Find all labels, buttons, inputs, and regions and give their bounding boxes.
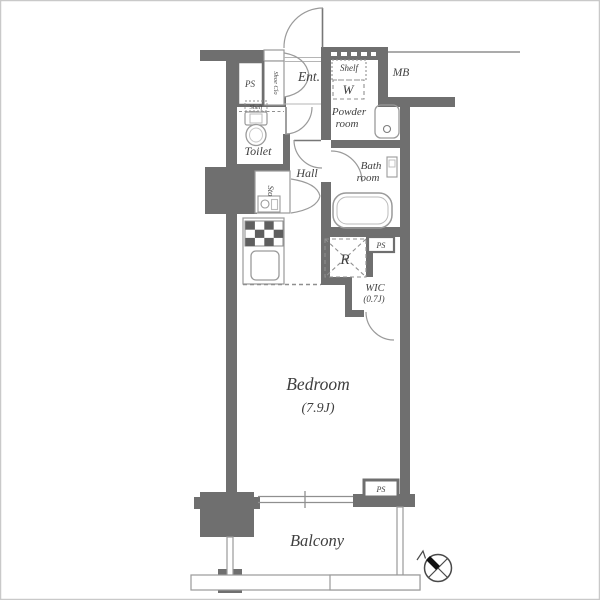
label-ps-mid: PS bbox=[376, 241, 386, 250]
label-hall: Hall bbox=[295, 166, 318, 180]
balcony-slab-right bbox=[330, 575, 420, 590]
pillar-mid-left bbox=[205, 167, 257, 214]
balcony-wall-right bbox=[397, 507, 403, 576]
shoe-closet-back bbox=[264, 50, 284, 61]
label-shoe-closet: Shoe Clo bbox=[272, 71, 279, 94]
label-toilet-shelf: Shelf bbox=[250, 104, 264, 111]
label-entrance: Ent. bbox=[297, 69, 320, 84]
label-shelf-washer: Shelf bbox=[340, 63, 359, 73]
wall-right bbox=[400, 97, 410, 507]
label-powder-1: Powder bbox=[331, 106, 367, 118]
wall-left bbox=[226, 50, 237, 492]
balcony-wall-left bbox=[227, 537, 233, 576]
label-refrigerator: R bbox=[339, 252, 349, 268]
label-washer: W bbox=[343, 82, 355, 97]
label-meter-box: MB bbox=[392, 67, 410, 79]
label-bath-2: room bbox=[357, 172, 380, 184]
label-wic-size: (0.7J) bbox=[363, 294, 384, 304]
floorplan-svg: Ent. Shoe Clo PS Shelf W MB Powder room … bbox=[0, 0, 600, 600]
label-powder-2: room bbox=[336, 118, 359, 130]
label-bath-1: Bath bbox=[361, 160, 382, 172]
label-balcony: Balcony bbox=[290, 531, 345, 550]
label-storage: Sto bbox=[266, 186, 276, 198]
wall-wic-bottom bbox=[345, 310, 364, 317]
label-ps-top: PS bbox=[244, 79, 255, 89]
wall-ent-powder bbox=[321, 60, 331, 107]
label-wic: WIC bbox=[365, 283, 385, 294]
pillar-bottom-left bbox=[200, 492, 254, 537]
pillar-tab-left bbox=[194, 497, 200, 509]
label-ps-bottom: PS bbox=[376, 485, 386, 494]
wall-hall-powder bbox=[321, 107, 331, 140]
floorplan-image: Ent. Shoe Clo PS Shelf W MB Powder room … bbox=[0, 0, 600, 600]
label-bedroom: Bedroom bbox=[286, 374, 350, 394]
label-bedroom-size: (7.9J) bbox=[301, 401, 334, 416]
label-toilet: Toilet bbox=[245, 144, 273, 158]
wall-powder-bath bbox=[331, 140, 400, 148]
